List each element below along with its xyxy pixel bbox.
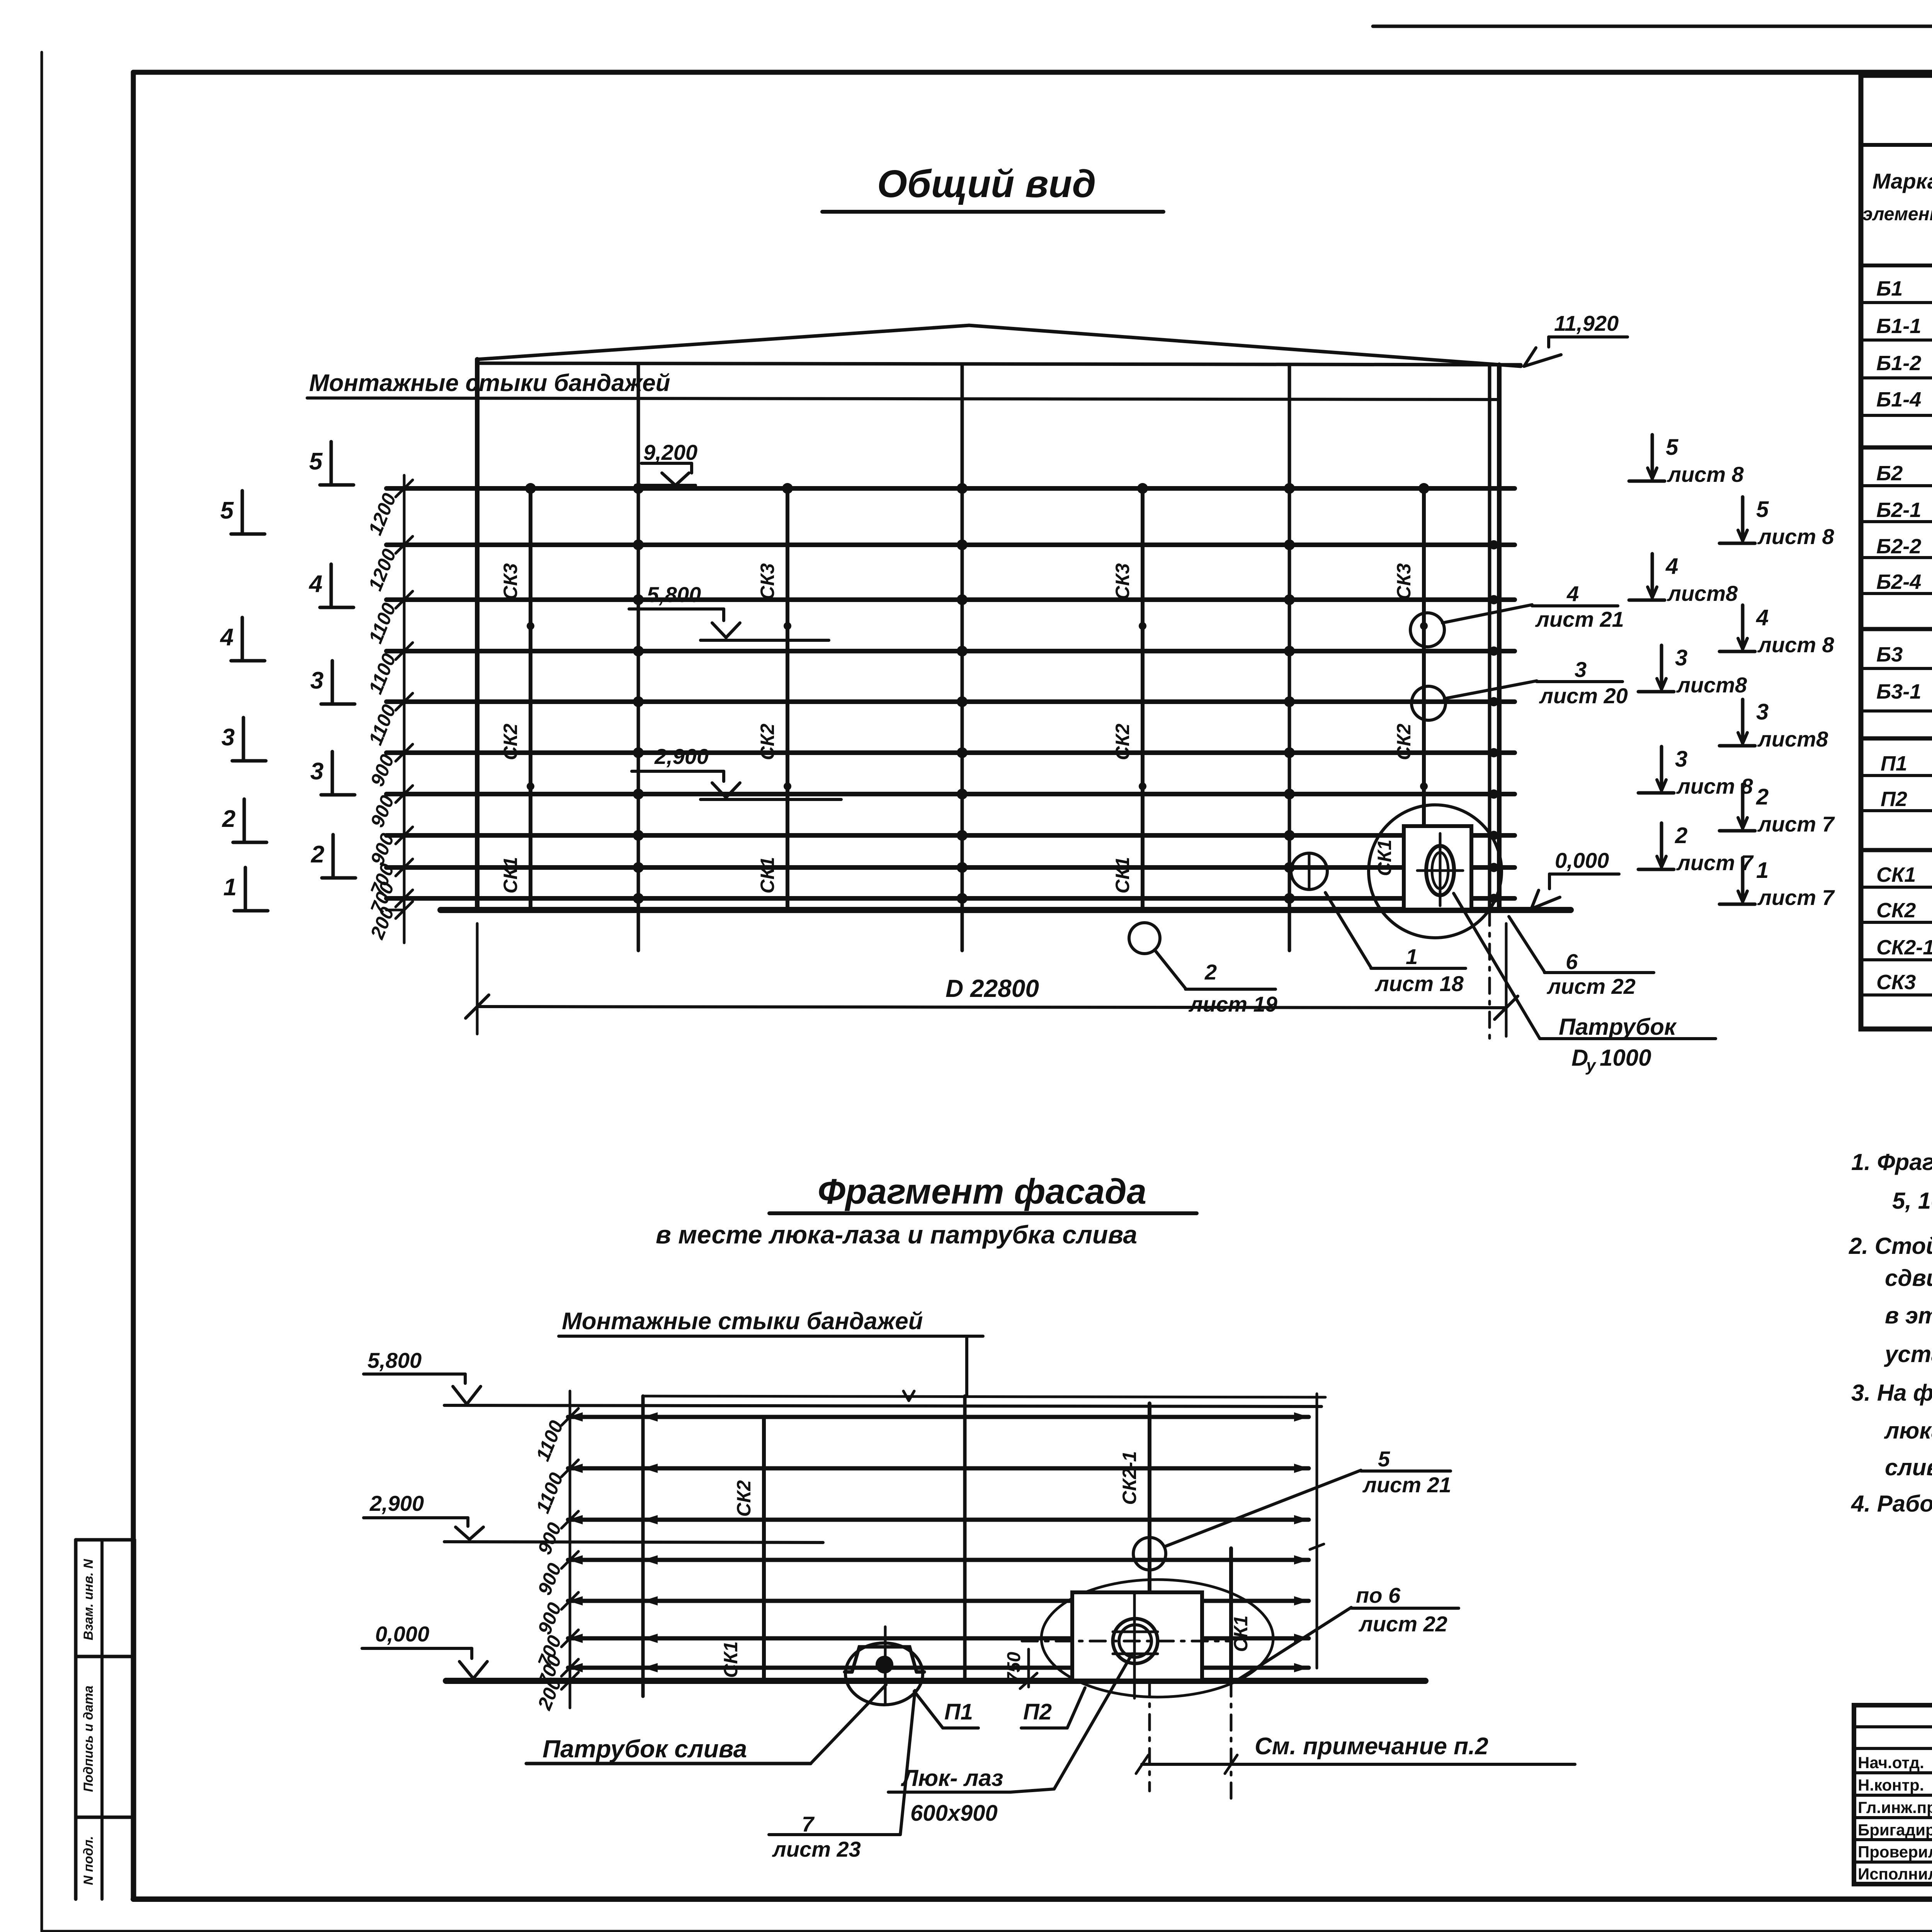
svg-text:5: 5 [1378,1447,1390,1471]
svg-text:5, 10, 15, 20 тыс. куб. м.: 5, 10, 15, 20 тыс. куб. м. [1892,1188,1932,1214]
svg-text:лист 8: лист 8 [1667,462,1744,486]
svg-text:Б3: Б3 [1876,643,1903,666]
svg-text:слива - см. узел 7.: слива - см. узел 7. [1885,1454,1932,1480]
svg-text:4: 4 [308,571,322,597]
svg-text:D: D [1571,1045,1588,1071]
svg-text:СК2: СК2 [1112,723,1133,760]
svg-text:СК3: СК3 [1876,971,1916,994]
svg-text:4: 4 [1566,582,1579,606]
svg-text:Б1-4: Б1-4 [1876,388,1921,411]
svg-text:Патрубок: Патрубок [1559,1014,1677,1040]
svg-text:СК3: СК3 [500,563,521,600]
svg-text:2: 2 [1756,784,1769,810]
svg-text:Б1: Б1 [1876,277,1903,300]
svg-text:1000: 1000 [1600,1045,1651,1071]
svg-text:лист 20: лист 20 [1539,684,1628,708]
svg-text:СК3: СК3 [1393,563,1415,600]
svg-text:Гл.инж.пр: Гл.инж.пр [1858,1798,1932,1816]
svg-text:СК2-1: СК2-1 [1119,1451,1140,1505]
svg-text:лист 7: лист 7 [1757,812,1835,836]
svg-text:устанавливается на бандаж -: устанавливается на бандаж - см. узел 5. [1884,1341,1932,1367]
svg-text:3: 3 [310,667,323,694]
svg-text:D 22800: D 22800 [946,975,1039,1002]
svg-text:по 6: по 6 [1356,1583,1401,1607]
svg-text:лист 8: лист 8 [1757,633,1835,657]
svg-text:5,800: 5,800 [367,1348,422,1372]
svg-text:11,920: 11,920 [1554,311,1619,335]
svg-text:П2: П2 [1881,787,1907,811]
svg-text:4: 4 [219,624,233,651]
svg-text:Проверил: Проверил [1858,1843,1932,1861]
svg-text:3: 3 [221,724,235,751]
svg-text:Б2-1: Б2-1 [1876,498,1921,522]
svg-text:СК3: СК3 [1112,563,1133,600]
svg-text:0,000: 0,000 [375,1622,429,1646]
svg-text:СК2: СК2 [733,1480,755,1517]
svg-text:лист 21: лист 21 [1535,607,1624,631]
svg-text:2: 2 [1204,960,1217,984]
svg-text:Б1-1: Б1-1 [1876,315,1921,338]
svg-text:1: 1 [1406,944,1418,969]
svg-text:2,900: 2,900 [654,744,709,769]
svg-text:2,900: 2,900 [369,1491,424,1515]
svg-text:лист8: лист8 [1676,673,1747,697]
svg-text:СК1: СК1 [1876,863,1916,886]
svg-text:лист 8: лист 8 [1757,524,1835,549]
svg-text:Б3-1: Б3-1 [1876,680,1921,703]
svg-text:люка-лаза - см. узел 6 и обх: люка-лаза - см. узел 6 и обход патрубка [1884,1418,1932,1444]
svg-text:2: 2 [222,806,235,832]
svg-text:600х900: 600х900 [910,1801,998,1826]
svg-text:3: 3 [1675,747,1687,772]
svg-text:Взам. инв. N: Взам. инв. N [81,1558,96,1640]
svg-text:лист 21: лист 21 [1362,1473,1451,1497]
svg-text:П1: П1 [944,1699,973,1725]
svg-text:в месте люка-лаза и патруб: в месте люка-лаза и патрубка слива [656,1220,1137,1249]
svg-text:Н.контр.: Н.контр. [1858,1776,1924,1794]
svg-text:3: 3 [310,758,323,785]
svg-text:Б2-2: Б2-2 [1876,535,1921,558]
svg-text:3. На фрагменте фасада пок: 3. На фрагменте фасада показан обход [1851,1380,1932,1406]
svg-text:Фрагмент фасада: Фрагмент фасада [818,1172,1146,1211]
svg-text:СК2: СК2 [500,723,521,760]
svg-text:Монтажные стыки бандажей: Монтажные стыки бандажей [309,370,670,396]
svg-text:СК1: СК1 [1230,1616,1252,1652]
svg-text:9,200: 9,200 [643,440,697,464]
svg-text:5: 5 [220,497,234,524]
svg-text:3: 3 [1756,699,1769,724]
svg-text:Люк- лаз: Люк- лаз [901,1765,1003,1791]
svg-text:6: 6 [1566,949,1578,974]
svg-text:у: у [1585,1056,1597,1075]
svg-text:Нач.отд.: Нач.отд. [1858,1753,1924,1772]
svg-text:П1: П1 [1881,752,1907,775]
svg-text:4: 4 [1665,554,1678,579]
svg-text:СК1: СК1 [500,857,521,894]
svg-text:5: 5 [1756,497,1769,522]
svg-text:5: 5 [1666,435,1679,460]
svg-text:лист 22: лист 22 [1358,1612,1447,1636]
svg-text:П2: П2 [1023,1699,1052,1725]
svg-text:лист 23: лист 23 [772,1837,861,1861]
svg-text:СК1: СК1 [1374,840,1395,876]
svg-text:Монтажные стыки бандажей: Монтажные стыки бандажей [562,1308,923,1335]
svg-text:1. Фрагмент фасада дан для: 1. Фрагмент фасада дан для баков объемом [1851,1149,1932,1175]
svg-text:1: 1 [223,874,236,901]
svg-text:3: 3 [1675,645,1687,670]
svg-text:0,000: 0,000 [1555,848,1609,872]
svg-text:4. Работать совместно с ли: 4. Работать совместно с листами 7, 8 [1851,1491,1932,1517]
svg-text:750: 750 [1004,1652,1024,1683]
svg-text:СК2-1: СК2-1 [1876,936,1932,959]
svg-text:Патрубок слива: Патрубок слива [543,1735,747,1763]
svg-text:Б2-4: Б2-4 [1876,570,1921,594]
svg-text:5: 5 [309,448,323,475]
svg-text:N подл.: N подл. [81,1836,96,1885]
svg-text:2: 2 [311,841,324,868]
svg-text:4: 4 [1756,605,1769,630]
svg-text:Бригадир: Бригадир [1858,1821,1932,1839]
svg-text:Общий вид: Общий вид [877,162,1096,206]
svg-text:См. примечание п.2: См. примечание п.2 [1255,1733,1488,1760]
svg-text:в этом случае вышестоящая: в этом случае вышестоящая стойка СК2-1 [1885,1303,1932,1328]
svg-text:сдвигается в сторону от проек: сдвигается в сторону от проектного полож… [1885,1265,1932,1291]
svg-text:лист 19: лист 19 [1188,992,1277,1016]
svg-text:СК2: СК2 [1393,723,1415,760]
svg-text:Б1-2: Б1-2 [1876,352,1921,375]
svg-text:2: 2 [1675,823,1687,848]
svg-text:элемент.: элемент. [1862,204,1932,224]
svg-text:3: 3 [1575,657,1587,682]
svg-text:СК1: СК1 [757,857,778,894]
svg-text:СК1: СК1 [720,1641,742,1678]
svg-text:лист 18: лист 18 [1374,971,1464,996]
svg-text:СК3: СК3 [757,563,778,600]
svg-text:СК1: СК1 [1112,857,1133,894]
svg-text:5,800: 5,800 [647,582,701,607]
svg-text:1: 1 [1756,858,1769,883]
svg-text:Б2: Б2 [1876,462,1903,485]
svg-text:СК2: СК2 [757,723,778,760]
svg-text:Исполнил: Исполнил [1858,1865,1932,1883]
svg-text:лист 7: лист 7 [1757,885,1835,910]
svg-text:лист8: лист8 [1667,581,1738,605]
svg-text:СК2: СК2 [1876,899,1916,922]
svg-text:2. Стойка нижнего яруса СК: 2. Стойка нижнего яруса СК1 при необходи… [1849,1233,1932,1259]
svg-text:лист8: лист8 [1757,727,1828,751]
svg-text:Марка: Марка [1872,169,1932,193]
svg-text:лист 22: лист 22 [1546,974,1636,998]
svg-text:7: 7 [802,1812,815,1836]
svg-text:Подпись и дата: Подпись и дата [81,1685,96,1792]
